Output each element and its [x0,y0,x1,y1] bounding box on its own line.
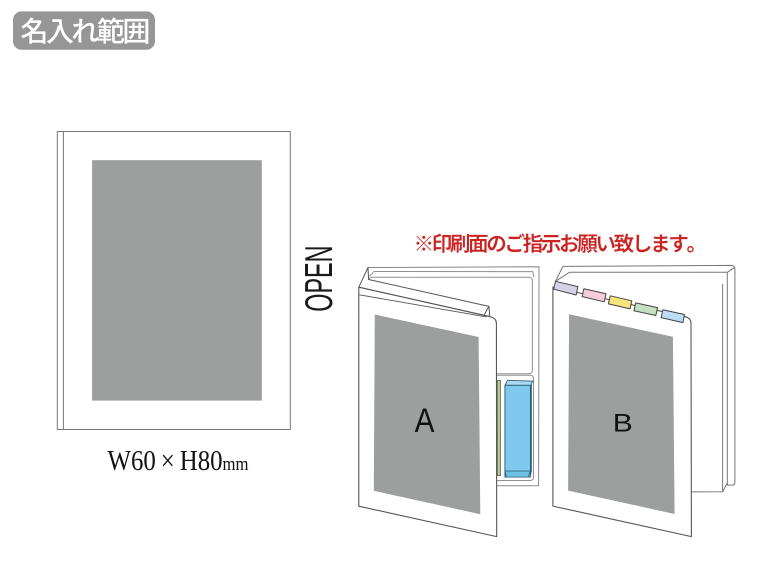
svg-text:B: B [613,409,633,437]
svg-text:OPEN: OPEN [297,245,341,311]
svg-text:W60 × H80mm: W60 × H80mm [108,444,249,476]
svg-text:A: A [415,401,435,439]
